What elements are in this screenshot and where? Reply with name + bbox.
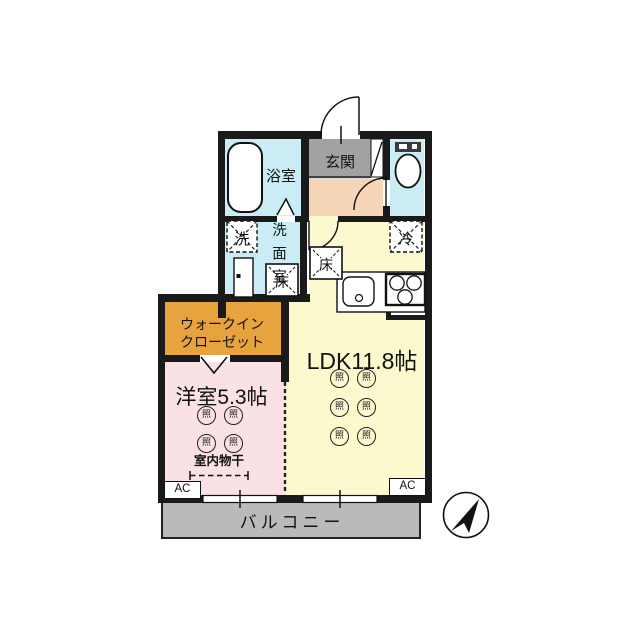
balcony-label: バルコニー (200, 508, 384, 533)
kitchen (337, 272, 425, 312)
western-room-label: 洋室5.3帖 (150, 381, 293, 411)
toilet (395, 142, 421, 188)
ac-unit-right: AC (389, 478, 426, 496)
ceiling-light-symbol: 照 (197, 434, 216, 453)
ceiling-light-symbol: 照 (224, 434, 243, 453)
ceiling-light-symbol: 照 (330, 427, 349, 446)
walk-in-closet-label-line2: クローゼット (159, 332, 285, 352)
entrance-label: 玄関 (311, 151, 369, 172)
floor-plan: 玄関 浴室 洗面室 洗 冷 床 床 LDK11.8帖 ウォークイン クローゼット… (0, 0, 640, 640)
floor-storage-label: 床 (311, 255, 341, 275)
ceiling-light-symbol: 照 (197, 406, 216, 425)
ac-unit-left: AC (164, 481, 201, 499)
entrance-step-line (309, 176, 371, 178)
burner (390, 276, 404, 290)
ceiling-light-symbol: 照 (330, 369, 349, 388)
compass-icon (444, 493, 489, 538)
ceiling-light-symbol: 照 (357, 369, 376, 388)
indoor-drying-label: 室内物干 (169, 450, 269, 469)
walk-in-closet-label-line1: ウォークイン (159, 314, 285, 334)
ceiling-light-symbol: 照 (330, 398, 349, 417)
entrance-door-swing (321, 97, 359, 144)
burner (398, 290, 412, 304)
washer-label: 洗 (228, 228, 256, 249)
ldk-room-lower (286, 302, 424, 495)
floor-storage-label: 床 (267, 272, 297, 292)
floor-plan-drawing (0, 0, 640, 640)
hallway (309, 179, 383, 216)
refrigerator-label: 冷 (392, 228, 420, 249)
ceiling-light-symbol: 照 (357, 398, 376, 417)
ceiling-light-symbol: 照 (224, 406, 243, 425)
sink-drain (356, 295, 363, 302)
bathroom-label: 浴室 (253, 165, 309, 186)
ceiling-light-symbol: 照 (357, 427, 376, 446)
burner (407, 276, 421, 290)
storage-unit-handle (237, 274, 241, 278)
